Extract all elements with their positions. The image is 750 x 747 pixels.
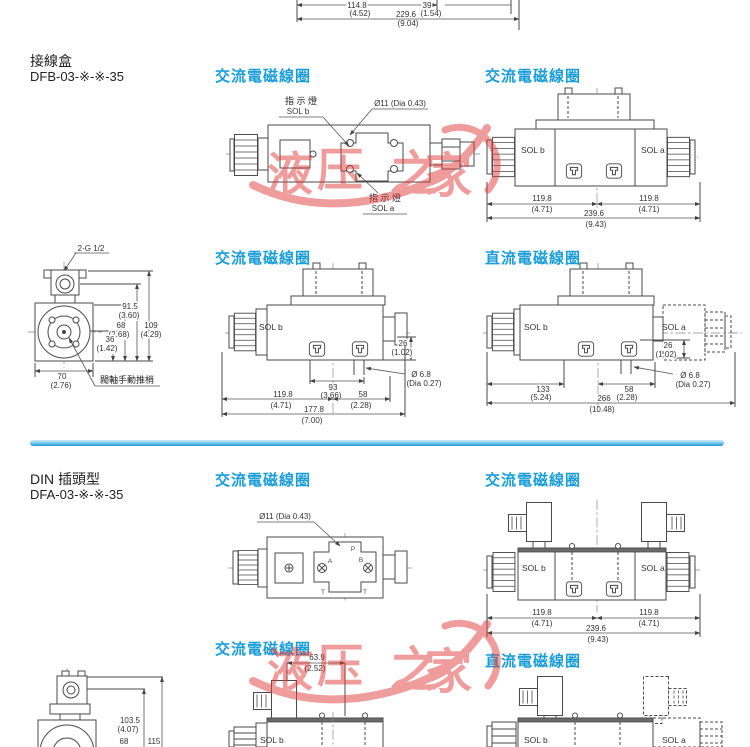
dim-value: 68 xyxy=(120,737,129,746)
dim-value: 239.6 xyxy=(586,624,607,633)
sol-a-label: SOL a xyxy=(641,563,665,573)
dim-value: 36 xyxy=(106,335,115,344)
indicator-label: 指 示 燈 xyxy=(285,95,317,106)
sol-a-label: SOL a xyxy=(372,204,395,213)
drawing-dfa-end-view: 103.5 (4.07) 68 115 xyxy=(38,668,163,747)
dim-inch: (4.71) xyxy=(532,205,553,214)
sol-b-label: SOL b xyxy=(522,563,546,573)
sol-b-label: SOL b xyxy=(259,322,283,332)
port-t-label: T xyxy=(321,589,325,596)
dim-inch: (1.54) xyxy=(421,9,442,18)
drawing-dfa-dc-side-view: SOL b SOL a xyxy=(487,677,722,747)
watermark-char: 压 xyxy=(317,144,363,196)
sol-a-label: SOL a xyxy=(641,145,665,155)
hole-dia-label: Ø11 (Dia 0.43) xyxy=(374,99,426,108)
top-dimension-lines: 114.8 (4.52) 39 (1.54) 229.6 (9.04) xyxy=(297,0,519,30)
dim-value: 103.5 xyxy=(120,716,141,725)
dim-value: 119.8 xyxy=(273,390,293,399)
dim-inch: (7.00) xyxy=(302,416,323,425)
hole-dia-label: Ø11 (Dia 0.43) xyxy=(259,512,311,521)
dim-value: 266 xyxy=(597,394,611,403)
dim-value: 109 xyxy=(144,321,158,330)
manual-pin-label: 閥軸手動推梢 xyxy=(100,374,154,385)
dim-value: 229.6 xyxy=(396,10,417,19)
dim-inch: (4.52) xyxy=(350,9,371,18)
dim-inch: (2.28) xyxy=(617,393,638,402)
watermark-char: 液 xyxy=(267,644,313,696)
dim-value: 91.5 xyxy=(122,302,138,311)
port-p-label: P xyxy=(351,546,355,553)
sol-b-label: SOL b xyxy=(524,322,548,332)
dim-inch: (1.42) xyxy=(97,344,118,353)
dim-inch: (10.48) xyxy=(589,405,615,414)
dim-value: 58 xyxy=(359,390,368,399)
dim-value: 68 xyxy=(117,321,126,330)
dim-value: 119.8 xyxy=(532,194,552,203)
drawing-dfb-ac-side-view: SOL b 26 (1.02) Ø 6.8 (Dia 0.27) 93 (3.6… xyxy=(222,263,442,425)
dim-inch: (2.28) xyxy=(351,401,372,410)
dim-inch: (1.02) xyxy=(656,350,677,359)
dim-value: 239.6 xyxy=(584,209,605,218)
port-a-label: A xyxy=(328,558,333,565)
dim-inch: (4.71) xyxy=(532,619,553,628)
watermark-char: 压 xyxy=(317,640,363,692)
dim-inch: (9.43) xyxy=(588,635,609,644)
sol-b-label: SOL b xyxy=(524,735,548,745)
dim-value: 119.8 xyxy=(639,194,659,203)
watermark-char: 家 xyxy=(424,646,472,699)
dim-value: 119.8 xyxy=(639,608,659,617)
line-art-layer: 114.8 (4.52) 39 (1.54) 229.6 (9.04) 指 示 … xyxy=(0,0,750,747)
dim-value: 26 xyxy=(664,341,673,350)
sol-b-label: SOL b xyxy=(260,735,284,745)
sol-b-label: SOL b xyxy=(521,145,545,155)
dim-value: 26 xyxy=(399,339,408,348)
drawing-dfa-ac-front-view: SOL b SOL a 119.8 (4.71) 119.8 (4.71) 23… xyxy=(483,500,700,644)
dim-inch: (5.24) xyxy=(531,393,552,402)
dim-value: 119.8 xyxy=(532,608,552,617)
port-b-label: B xyxy=(359,557,363,564)
drawing-dfb-dc-side-view: SOL b SOL a 26 (1.02) Ø 6.8 (Dia 0.27) 1… xyxy=(483,263,742,414)
dim-inch: (4.07) xyxy=(118,725,139,734)
dim-inch: (4.71) xyxy=(639,205,660,214)
sol-a-label: SOL a xyxy=(662,322,686,332)
dim-inch: (9.04) xyxy=(398,19,419,28)
dim-inch: (3.60) xyxy=(119,311,140,320)
dim-value: 70 xyxy=(58,372,67,381)
drawing-dfa-top-view: Ø11 (Dia 0.43) P A B T T xyxy=(228,512,412,603)
dim-value: 177.8 xyxy=(304,405,325,414)
watermark-char: 家 xyxy=(424,150,472,203)
dim-inch: (Dia 0.27) xyxy=(675,380,710,389)
sol-a-label: SOL a xyxy=(662,735,686,745)
dim-inch: (4.29) xyxy=(141,330,162,339)
port-t-label: T xyxy=(363,589,367,596)
watermark-bottom: 液 压 之 家 xyxy=(253,623,497,699)
dim-value: Ø 6.8 xyxy=(411,370,431,379)
dim-inch: (2.76) xyxy=(51,381,72,390)
dim-inch: (9.43) xyxy=(586,220,607,229)
port-thread-label: 2-G 1/2 xyxy=(78,244,105,253)
catalog-page: 接線盒 DFB-03-※-※-35 交流電磁線圈 交流電磁線圈 交流電磁線圈 直… xyxy=(0,0,750,747)
dim-inch: (1.02) xyxy=(392,348,413,357)
watermark-char: 液 xyxy=(267,148,313,200)
dim-value: 115 xyxy=(148,737,161,746)
dim-inch: (Dia 0.27) xyxy=(406,379,441,388)
dim-inch: (4.71) xyxy=(271,401,292,410)
dim-value: Ø 6.8 xyxy=(680,371,700,380)
drawing-dfb-end-view: 2-G 1/2 91.5 (3.60) 68 (2.68) xyxy=(28,244,162,390)
dim-inch: (4.71) xyxy=(639,619,660,628)
drawing-dfb-ac-front-view: SOL b SOL a 119.8 (4.71) 119.8 (4.71) 23… xyxy=(487,88,700,229)
sol-b-label: SOL b xyxy=(287,107,310,116)
